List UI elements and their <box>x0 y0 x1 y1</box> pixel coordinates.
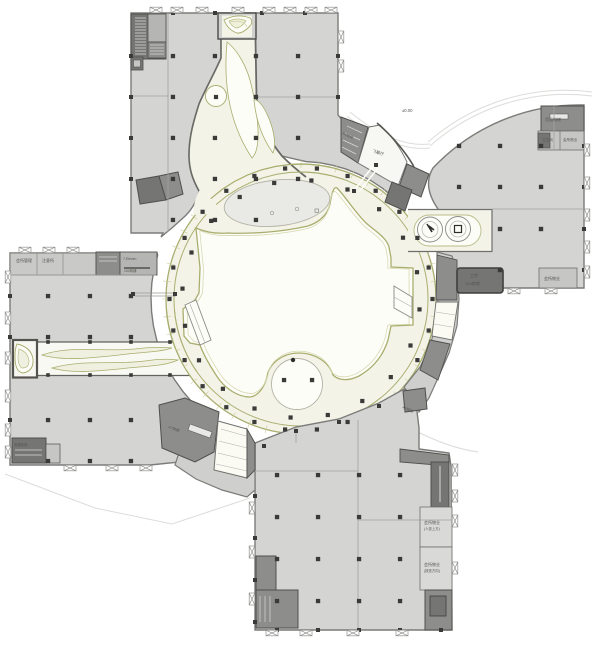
svg-text:104商铺: 104商铺 <box>465 280 480 286</box>
svg-text:(人查上方): (人查上方) <box>424 526 440 531</box>
svg-text:会所物业: 会所物业 <box>563 137 578 142</box>
svg-text:工作: 工作 <box>470 272 478 278</box>
svg-text:104商铺: 104商铺 <box>124 268 137 273</box>
svg-text:会所物业: 会所物业 <box>424 519 440 525</box>
svg-text:7-Eleven: 7-Eleven <box>123 257 136 261</box>
svg-text:会所物业: 会所物业 <box>424 561 440 567</box>
svg-text:电梯机房: 电梯机房 <box>14 442 28 447</box>
svg-text:货运电梯: 货运电梯 <box>545 116 561 122</box>
svg-text:(按查方向): (按查方向) <box>424 568 440 573</box>
svg-text:±0.00: ±0.00 <box>402 108 413 113</box>
svg-text:会所物业: 会所物业 <box>544 275 560 281</box>
svg-text:卫生间: 卫生间 <box>542 137 553 142</box>
svg-text:会所管理: 会所管理 <box>16 257 32 263</box>
svg-text:注意所: 注意所 <box>42 257 54 263</box>
